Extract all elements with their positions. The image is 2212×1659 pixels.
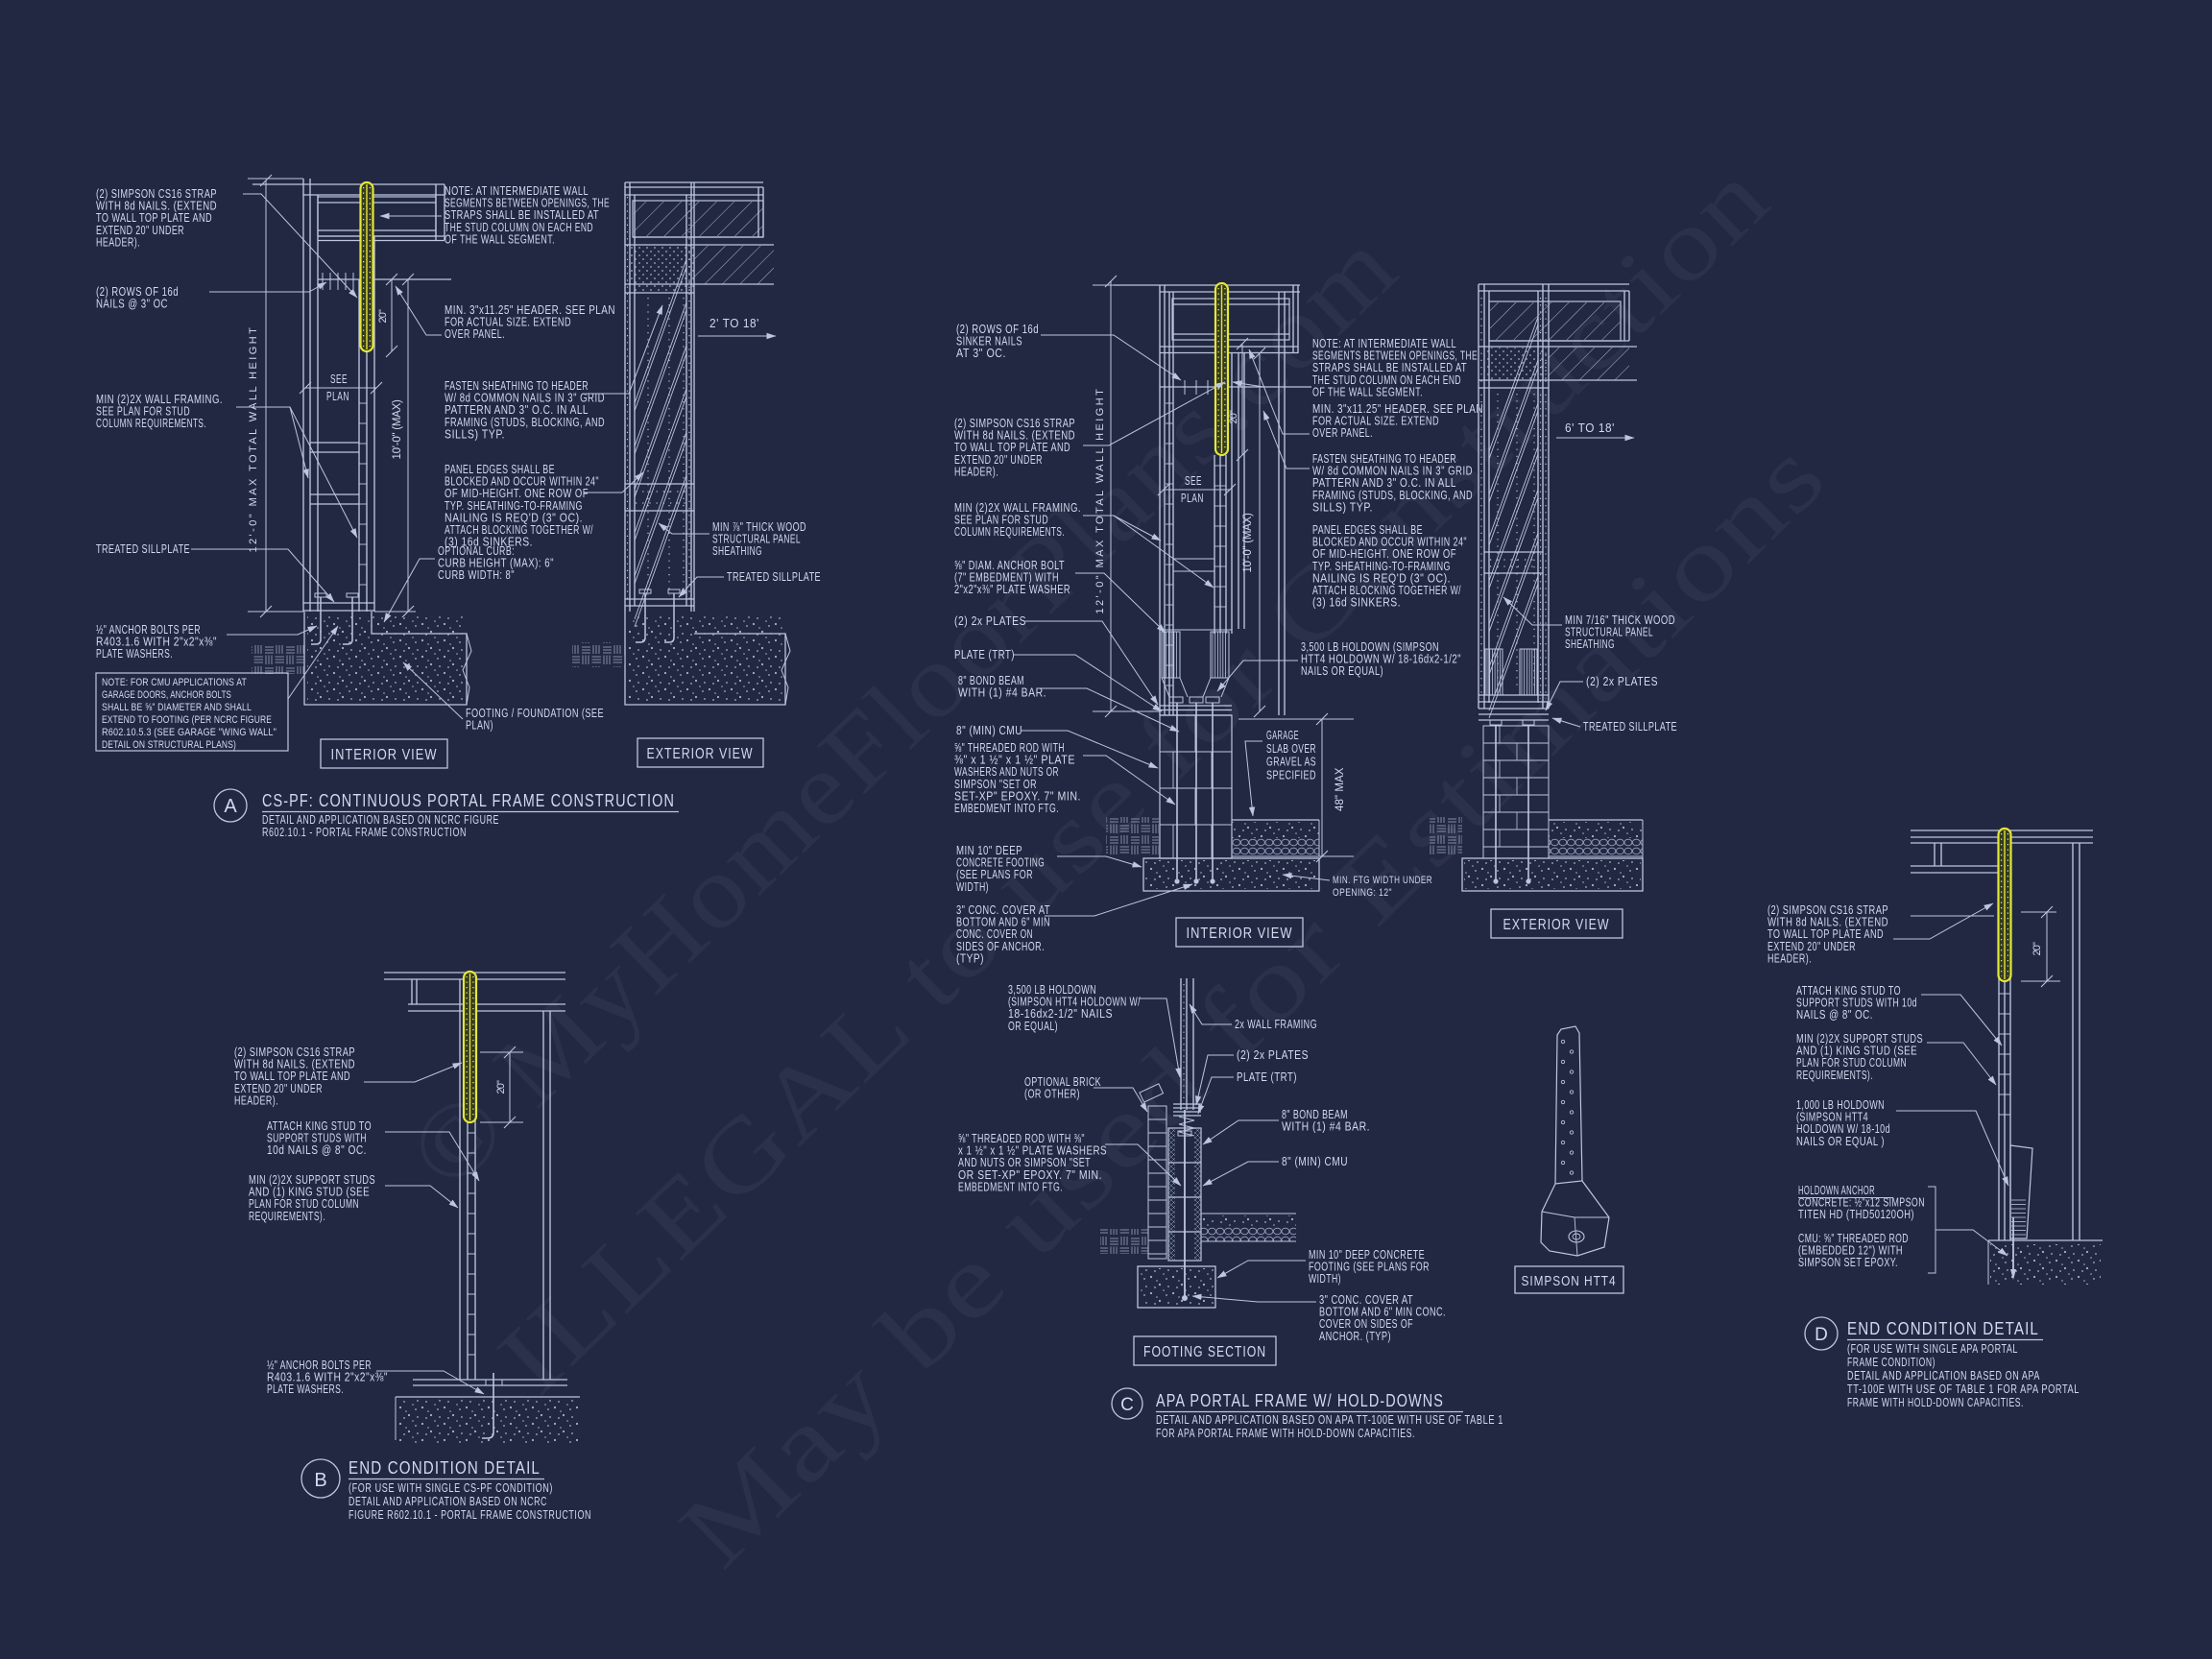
svg-text:WIDTH): WIDTH) — [956, 880, 989, 894]
svg-text:OVER PANEL.: OVER PANEL. — [1312, 426, 1373, 440]
svg-text:COLUMN REQUIREMENTS.: COLUMN REQUIREMENTS. — [96, 417, 206, 430]
svg-text:REQUIREMENTS).: REQUIREMENTS). — [1796, 1069, 1873, 1082]
svg-text:(FOR USE WITH SINGLE CS-PF CON: (FOR USE WITH SINGLE CS-PF CONDITION) — [349, 1481, 553, 1495]
svg-text:NAILS @ 3" OC: NAILS @ 3" OC — [96, 298, 168, 311]
svg-text:20": 20" — [2032, 942, 2043, 956]
svg-text:GARAGE: GARAGE — [1266, 729, 1299, 742]
svg-text:PLAN: PLAN — [326, 389, 349, 403]
svg-text:(2) 2x PLATES: (2) 2x PLATES — [1237, 1048, 1309, 1062]
svg-text:APA PORTAL FRAME W/ HOLD-DOWNS: APA PORTAL FRAME W/ HOLD-DOWNS — [1156, 1390, 1444, 1410]
svg-text:2' TO 18': 2' TO 18' — [709, 317, 759, 330]
svg-text:FOR APA PORTAL FRAME WITH HOLD: FOR APA PORTAL FRAME WITH HOLD-DOWN CAPA… — [1156, 1427, 1415, 1440]
svg-text:NAILS OR EQUAL ): NAILS OR EQUAL ) — [1796, 1135, 1885, 1148]
svg-text:(TYP): (TYP) — [956, 951, 984, 965]
svg-text:SIMPSON SET EPOXY.: SIMPSON SET EPOXY. — [1798, 1256, 1898, 1269]
svg-text:TREATED SILLPLATE: TREATED SILLPLATE — [727, 570, 821, 584]
svg-text:INTERIOR VIEW: INTERIOR VIEW — [1187, 926, 1293, 942]
svg-text:(OR OTHER): (OR OTHER) — [1024, 1088, 1080, 1101]
svg-text:TREATED SILLPLATE: TREATED SILLPLATE — [1583, 720, 1677, 733]
svg-text:8" (MIN) CMU: 8" (MIN) CMU — [1282, 1155, 1348, 1168]
svg-text:REQUIREMENTS).: REQUIREMENTS). — [249, 1210, 325, 1223]
svg-text:NAILS OR EQUAL): NAILS OR EQUAL) — [1301, 664, 1383, 678]
svg-text:HEADER).: HEADER). — [96, 235, 140, 249]
svg-text:HEADER).: HEADER). — [1767, 951, 1812, 965]
svg-text:GRAVEL AS: GRAVEL AS — [1266, 756, 1316, 769]
svg-text:FOOTING SECTION: FOOTING SECTION — [1143, 1344, 1266, 1360]
svg-text:20": 20" — [377, 309, 389, 324]
svg-text:SHALL BE ⅝" DIAMETER AND SHALL: SHALL BE ⅝" DIAMETER AND SHALL — [102, 702, 252, 713]
svg-text:PLATE (TRT): PLATE (TRT) — [1237, 1070, 1297, 1084]
svg-text:SILLS) TYP.: SILLS) TYP. — [445, 427, 505, 441]
svg-text:WITH (1) #4 BAR.: WITH (1) #4 BAR. — [958, 686, 1046, 700]
svg-text:DETAIL AND APPLICATION BASED O: DETAIL AND APPLICATION BASED ON APA — [1847, 1369, 2040, 1382]
svg-text:SILLS) TYP.: SILLS) TYP. — [1312, 500, 1373, 514]
svg-text:48" MAX: 48" MAX — [1334, 767, 1346, 811]
svg-text:NOTE: FOR CMU APPLICATIONS AT: NOTE: FOR CMU APPLICATIONS AT — [102, 677, 247, 688]
svg-text:WIDTH): WIDTH) — [1309, 1272, 1341, 1286]
svg-text:DETAIL AND APPLICATION BASED O: DETAIL AND APPLICATION BASED ON NCRC FIG… — [262, 813, 499, 827]
svg-text:SHEATHING: SHEATHING — [1565, 637, 1615, 651]
svg-text:8" (MIN) CMU: 8" (MIN) CMU — [956, 724, 1022, 737]
svg-text:10'-0" (MAX): 10'-0" (MAX) — [392, 399, 403, 460]
svg-text:FIGURE R602.10.1 - PORTAL FRAM: FIGURE R602.10.1 - PORTAL FRAME CONSTRUC… — [349, 1508, 591, 1522]
svg-text:TITEN HD (THD50120OH): TITEN HD (THD50120OH) — [1798, 1208, 1914, 1221]
svg-text:CS-PF: CONTINUOUS PORTAL FRAME: CS-PF: CONTINUOUS PORTAL FRAME CONSTRUCT… — [262, 790, 675, 810]
svg-text:10d NAILS @ 8" OC.: 10d NAILS @ 8" OC. — [267, 1143, 367, 1157]
svg-text:FRAME WITH HOLD-DOWN CAPACITIE: FRAME WITH HOLD-DOWN CAPACITIES. — [1847, 1396, 2024, 1409]
svg-text:(2) 2x PLATES: (2) 2x PLATES — [954, 614, 1026, 628]
svg-text:(FOR USE WITH SINGLE APA PORTA: (FOR USE WITH SINGLE APA PORTAL — [1847, 1342, 2018, 1356]
svg-text:PLAN: PLAN — [1181, 491, 1204, 505]
svg-text:6' TO 18': 6' TO 18' — [1565, 421, 1615, 435]
svg-text:OPENING: 12": OPENING: 12" — [1333, 887, 1392, 899]
svg-text:(3) 16d SINKERS.: (3) 16d SINKERS. — [1312, 596, 1401, 610]
svg-text:EXTERIOR VIEW: EXTERIOR VIEW — [1503, 917, 1610, 933]
svg-text:INTERIOR VIEW: INTERIOR VIEW — [331, 747, 438, 763]
svg-text:10'-0" (MAX): 10'-0" (MAX) — [1242, 513, 1254, 573]
svg-text:HEADER).: HEADER). — [954, 465, 998, 478]
svg-text:R602.10.1 - PORTAL FRAME CONST: R602.10.1 - PORTAL FRAME CONSTRUCTION — [262, 826, 467, 839]
svg-text:SLAB OVER: SLAB OVER — [1266, 742, 1316, 756]
svg-text:DETAIL AND APPLICATION BASED O: DETAIL AND APPLICATION BASED ON NCRC — [349, 1495, 547, 1508]
svg-text:SEE: SEE — [330, 372, 348, 386]
svg-text:EXTEND TO FOOTING (PER NCRC FI: EXTEND TO FOOTING (PER NCRC FIGURE — [102, 714, 272, 726]
svg-text:SIMPSON HTT4: SIMPSON HTT4 — [1522, 1273, 1617, 1289]
svg-text:2x WALL FRAMING: 2x WALL FRAMING — [1235, 1018, 1317, 1031]
svg-text:FRAME CONDITION): FRAME CONDITION) — [1847, 1356, 1935, 1369]
svg-text:PLATE WASHERS.: PLATE WASHERS. — [267, 1382, 344, 1396]
svg-text:2"x2"x⅜" PLATE WASHER: 2"x2"x⅜" PLATE WASHER — [954, 583, 1070, 596]
svg-text:TREATED SILLPLATE: TREATED SILLPLATE — [96, 542, 190, 556]
svg-text:SEE: SEE — [1185, 473, 1202, 488]
svg-text:END CONDITION DETAIL: END CONDITION DETAIL — [349, 1457, 541, 1478]
svg-text:(2) 2x PLATES: (2) 2x PLATES — [1586, 675, 1658, 688]
svg-text:20": 20" — [495, 1080, 507, 1094]
svg-text:SPECIFIED: SPECIFIED — [1266, 768, 1316, 781]
svg-text:MIN. FTG WIDTH UNDER: MIN. FTG WIDTH UNDER — [1333, 875, 1432, 886]
svg-text:EXTERIOR VIEW: EXTERIOR VIEW — [647, 746, 754, 762]
svg-text:END CONDITION DETAIL: END CONDITION DETAIL — [1847, 1318, 2039, 1338]
svg-text:AT 3" OC.: AT 3" OC. — [956, 347, 1006, 360]
svg-text:C: C — [1120, 1395, 1134, 1415]
svg-text:B: B — [314, 1470, 326, 1491]
svg-text:A: A — [224, 796, 237, 817]
svg-text:PLAN): PLAN) — [466, 719, 493, 733]
svg-text:SHEATHING: SHEATHING — [712, 544, 762, 558]
svg-text:20": 20" — [1228, 410, 1239, 424]
svg-text:OF THE WALL SEGMENT.: OF THE WALL SEGMENT. — [1312, 385, 1423, 398]
svg-text:EMBEDMENT INTO FTG.: EMBEDMENT INTO FTG. — [958, 1180, 1063, 1193]
svg-text:DETAIL AND APPLICATION BASED O: DETAIL AND APPLICATION BASED ON APA TT-1… — [1156, 1413, 1503, 1427]
svg-text:TT-100E WITH USE OF TABLE 1 FO: TT-100E WITH USE OF TABLE 1 FOR APA PORT… — [1847, 1382, 2080, 1396]
svg-text:HEADER).: HEADER). — [234, 1094, 278, 1107]
svg-text:R602.10.5.3 (SEE GARAGE "WING: R602.10.5.3 (SEE GARAGE "WING WALL" — [102, 727, 276, 738]
svg-text:OVER PANEL.: OVER PANEL. — [445, 327, 505, 341]
svg-text:PLATE (TRT): PLATE (TRT) — [954, 648, 1015, 661]
svg-text:NAILS @ 8" OC.: NAILS @ 8" OC. — [1796, 1008, 1873, 1022]
svg-text:OR EQUAL): OR EQUAL) — [1008, 1020, 1058, 1033]
svg-text:WITH (1) #4 BAR.: WITH (1) #4 BAR. — [1282, 1120, 1370, 1134]
svg-text:EMBEDMENT INTO FTG.: EMBEDMENT INTO FTG. — [954, 802, 1059, 815]
svg-text:OF THE WALL SEGMENT.: OF THE WALL SEGMENT. — [445, 232, 555, 246]
svg-text:CURB WIDTH: 8": CURB WIDTH: 8" — [438, 568, 515, 582]
svg-text:ANCHOR. (TYP): ANCHOR. (TYP) — [1319, 1330, 1391, 1343]
svg-text:D: D — [1815, 1325, 1828, 1345]
svg-text:DETAIL ON STRUCTURAL PLANS): DETAIL ON STRUCTURAL PLANS) — [102, 739, 236, 751]
svg-text:COLUMN REQUIREMENTS.: COLUMN REQUIREMENTS. — [954, 525, 1065, 539]
svg-text:PLATE WASHERS.: PLATE WASHERS. — [96, 647, 173, 661]
svg-text:GARAGE DOORS, ANCHOR BOLTS: GARAGE DOORS, ANCHOR BOLTS — [102, 689, 231, 701]
